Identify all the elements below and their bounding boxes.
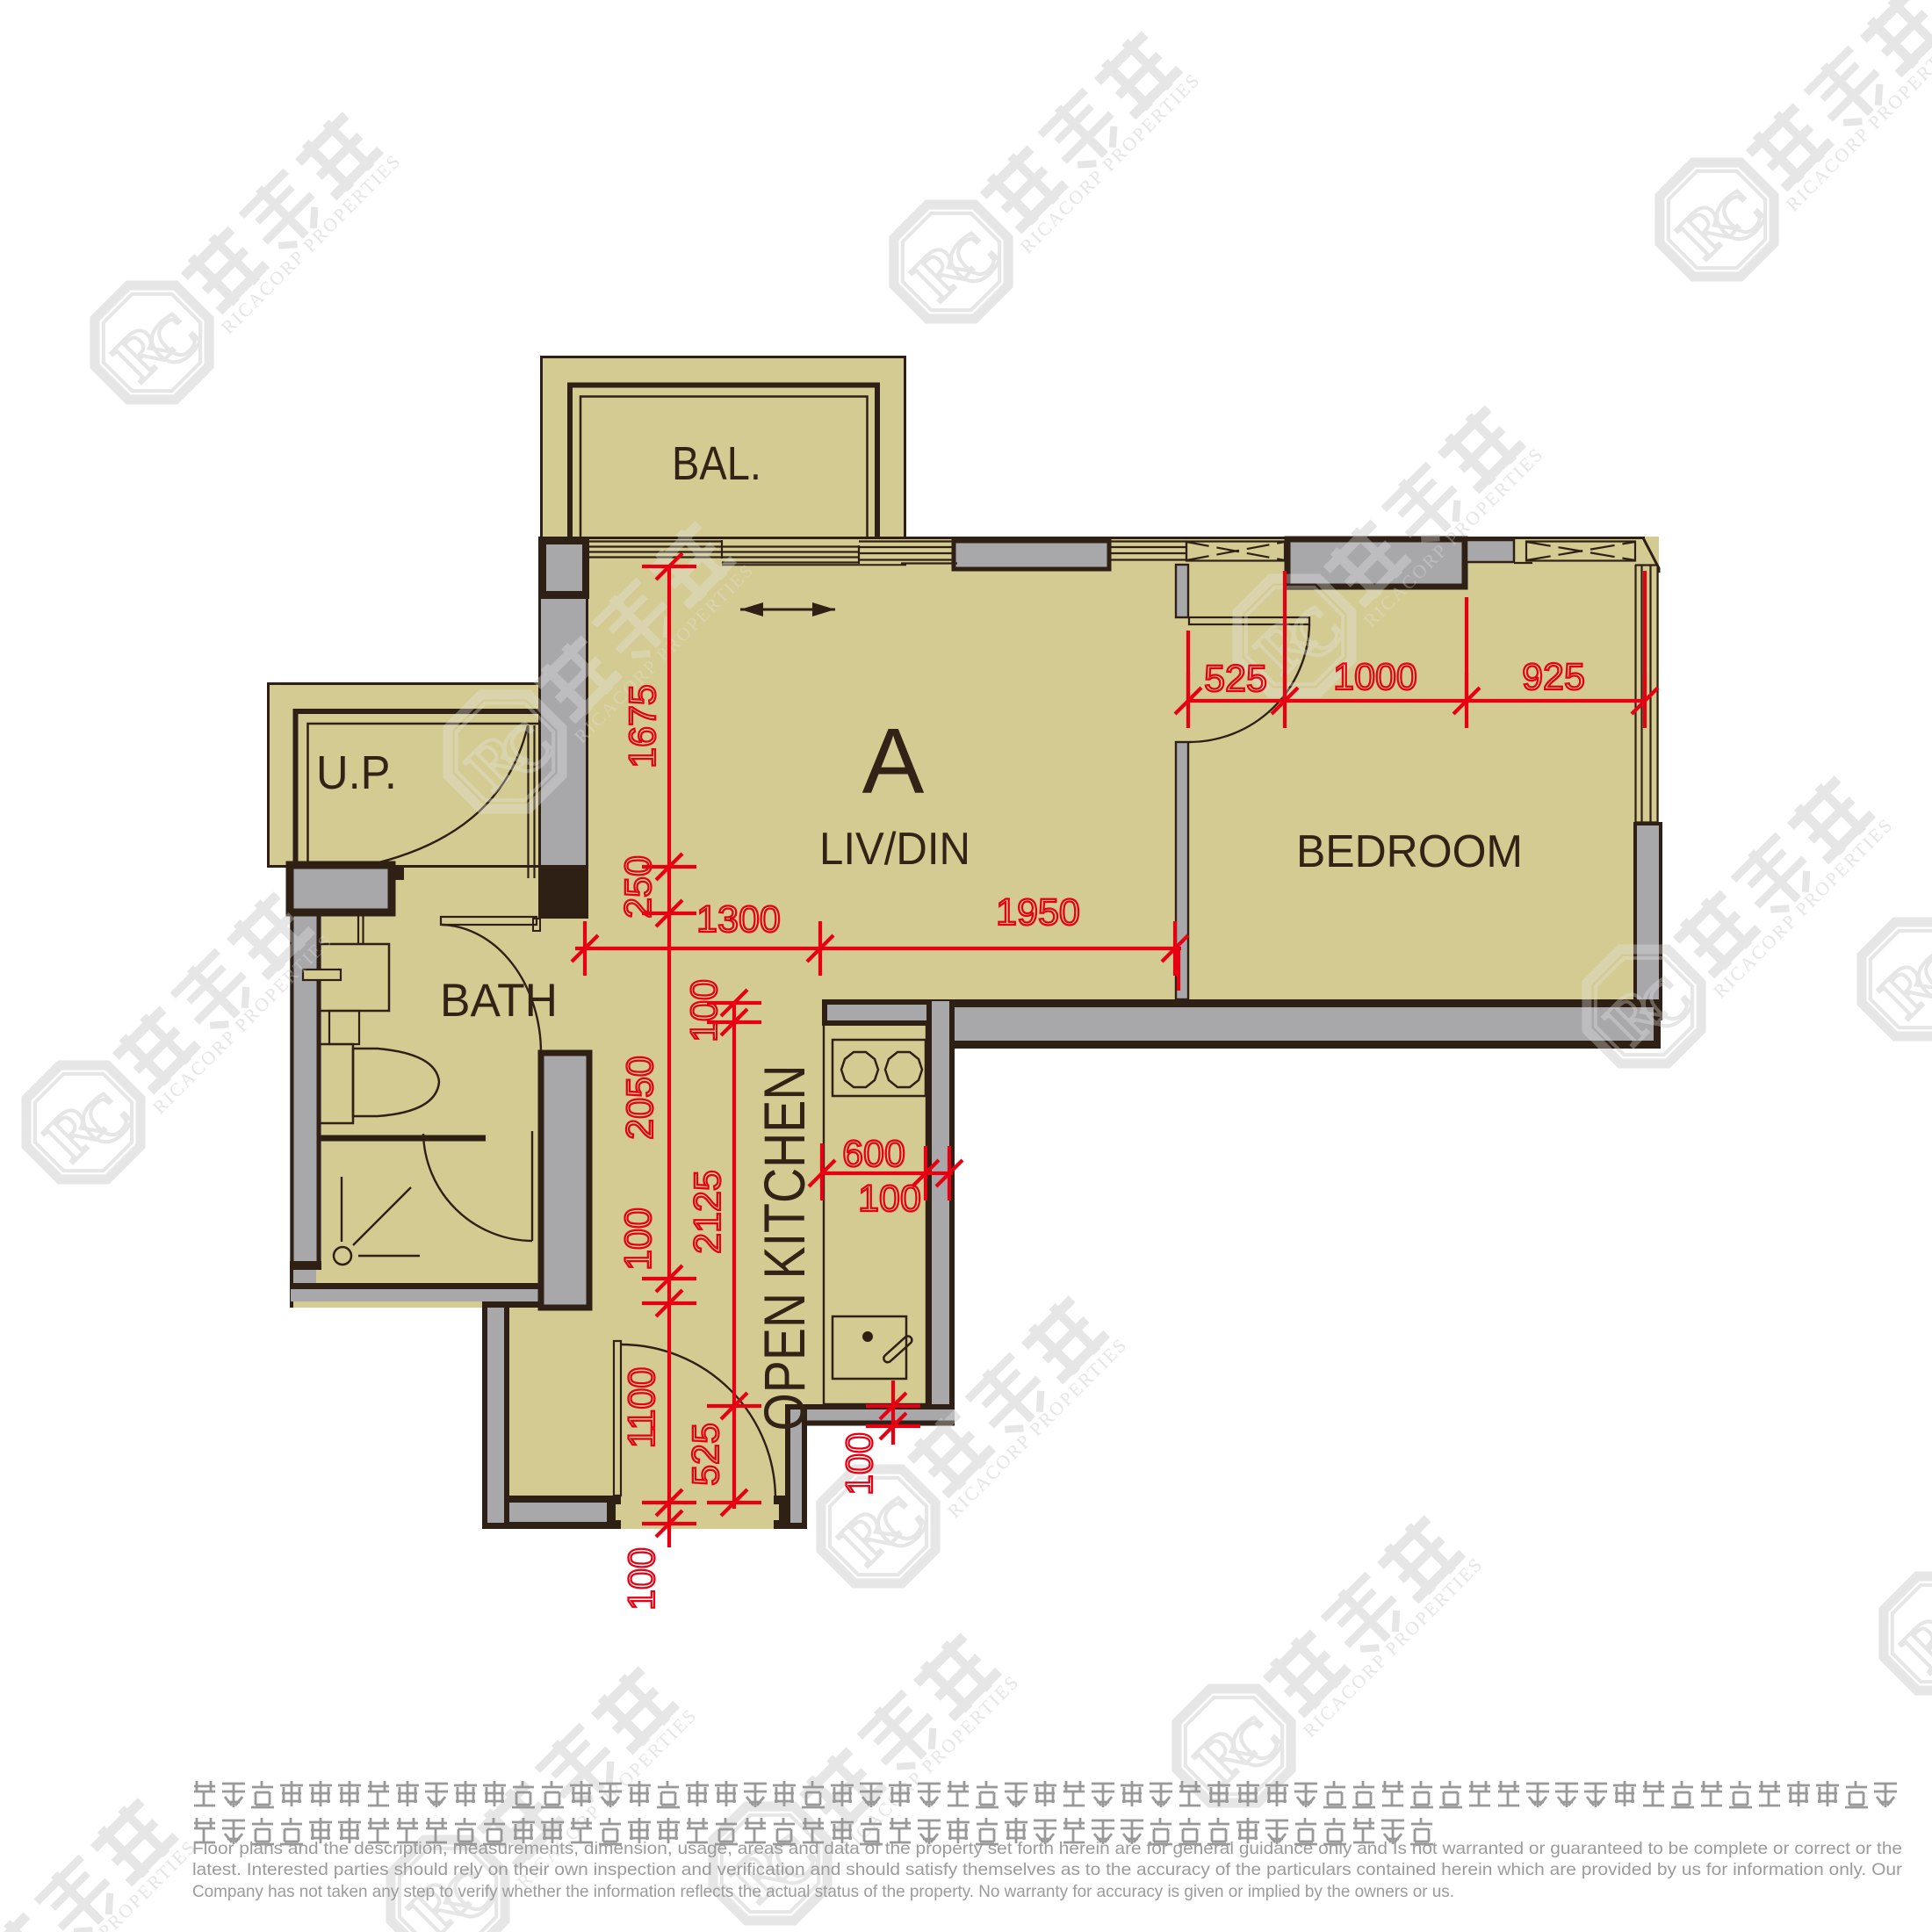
svg-text:100: 100: [839, 1432, 881, 1496]
svg-text:100: 100: [683, 979, 725, 1042]
svg-text:250: 250: [617, 855, 660, 919]
svg-text:latest. Interested parties sho: latest. Interested parties should rely o…: [192, 1860, 1903, 1879]
svg-text:1300: 1300: [696, 898, 781, 941]
svg-text:BATH: BATH: [440, 975, 558, 1027]
svg-text:100: 100: [858, 1178, 921, 1220]
svg-text:BAL.: BAL.: [672, 437, 761, 490]
svg-text:525: 525: [685, 1423, 727, 1486]
svg-text:U.P.: U.P.: [316, 746, 397, 799]
svg-text:Floor plans and the descriptio: Floor plans and the description, measure…: [192, 1839, 1902, 1858]
svg-text:2125: 2125: [687, 1170, 729, 1254]
svg-text:100: 100: [617, 1207, 660, 1271]
svg-text:100: 100: [621, 1547, 663, 1611]
svg-text:1675: 1675: [622, 684, 664, 768]
svg-text:1950: 1950: [996, 891, 1080, 934]
svg-text:1000: 1000: [1333, 656, 1417, 698]
svg-text:1100: 1100: [621, 1367, 663, 1448]
svg-text:925: 925: [1522, 656, 1585, 698]
svg-text:LIV/DIN: LIV/DIN: [819, 824, 970, 875]
svg-text:Company has not taken any step: Company has not taken any step to verify…: [192, 1882, 1454, 1901]
svg-text:OPEN KITCHEN: OPEN KITCHEN: [752, 1065, 817, 1431]
svg-text:A: A: [862, 710, 925, 813]
svg-text:BEDROOM: BEDROOM: [1296, 826, 1523, 877]
svg-text:525: 525: [1204, 658, 1267, 700]
svg-text:600: 600: [842, 1133, 905, 1175]
svg-text:2050: 2050: [619, 1056, 661, 1140]
